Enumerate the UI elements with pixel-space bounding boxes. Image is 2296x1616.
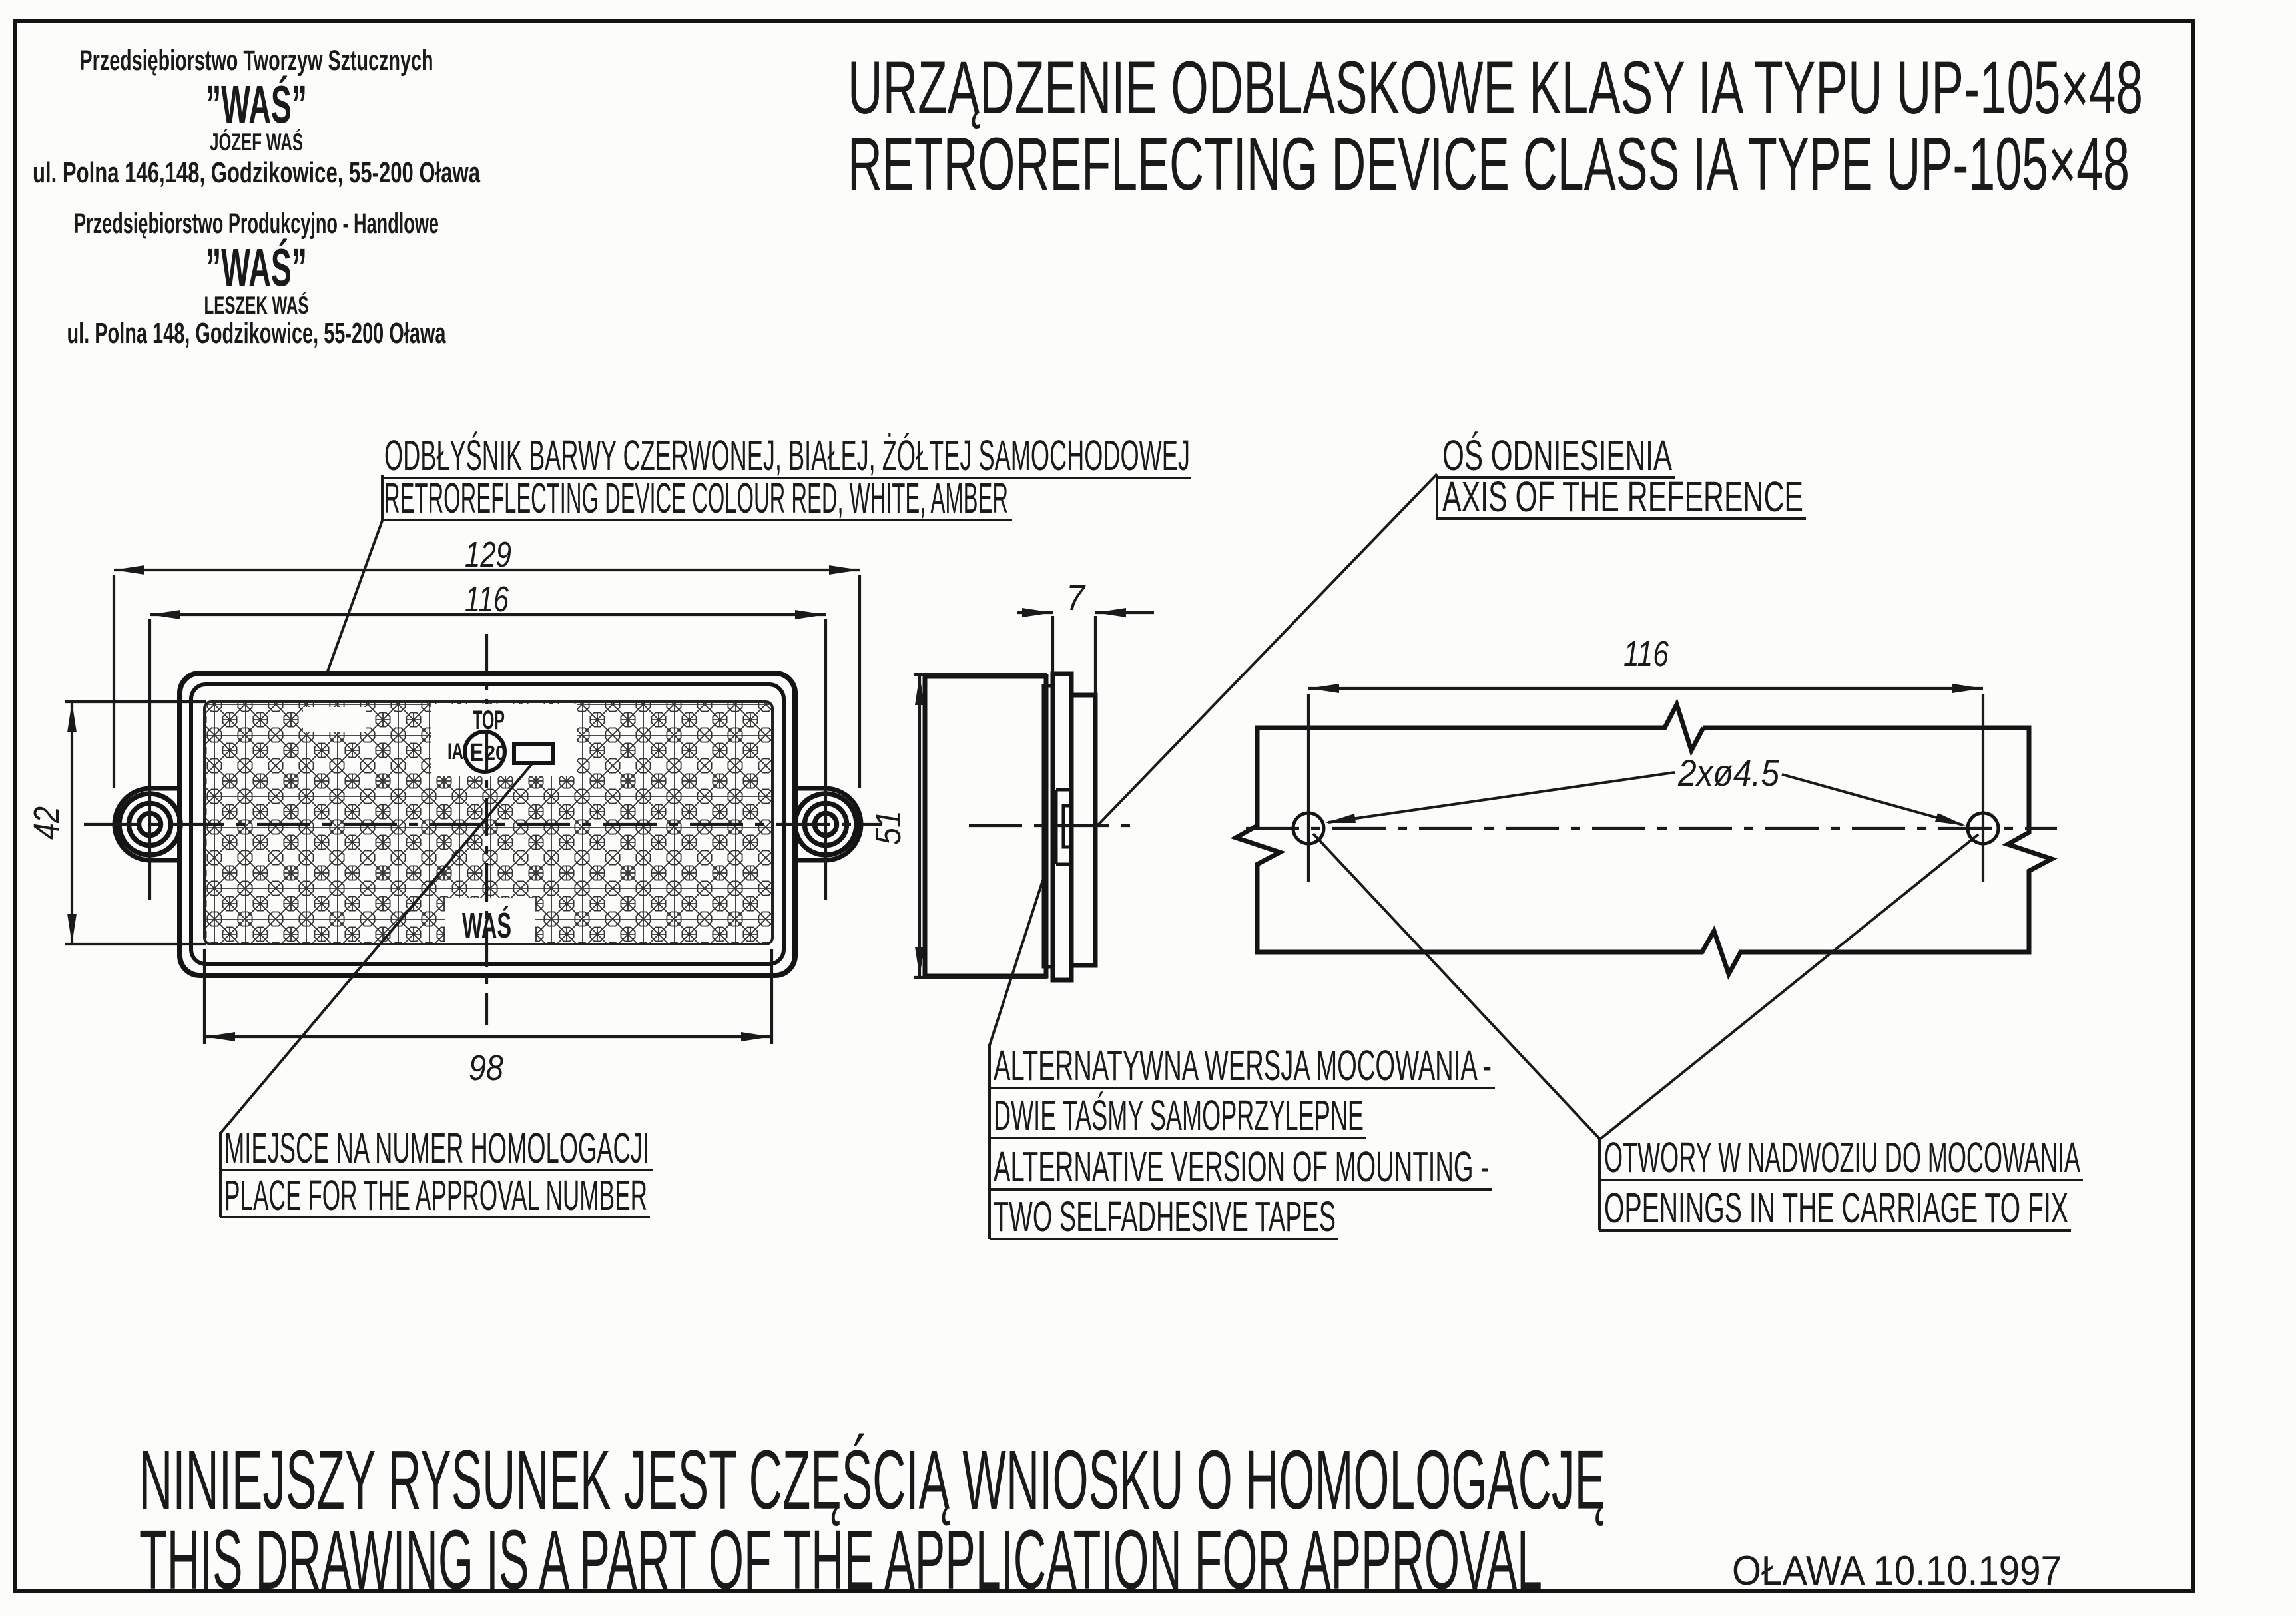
svg-text:ODBŁYŚNIK BARWY CZERWONEJ, BIA: ODBŁYŚNIK BARWY CZERWONEJ, BIAŁEJ, ŻÓŁTE… [384,431,1190,479]
svg-text:Przedsiębiorstwo Produkcyjno -: Przedsiębiorstwo Produkcyjno - Handlowe [74,208,439,240]
svg-text:ul. Polna 148, Godzikowice, 55: ul. Polna 148, Godzikowice, 55-200 Oława [67,317,446,350]
svg-text:LESZEK WAŚ: LESZEK WAŚ [204,291,309,319]
svg-text:98: 98 [469,1048,503,1088]
svg-text:ALTERNATIVE VERSION OF MOUNTIN: ALTERNATIVE VERSION OF MOUNTING - [994,1143,1489,1191]
svg-text:ALTERNATYWNA WERSJA MOCOWANIA: ALTERNATYWNA WERSJA MOCOWANIA - [994,1041,1492,1089]
svg-text:2xø4.5: 2xø4.5 [1677,752,1780,794]
svg-text:OPENINGS IN THE CARRIAGE TO FI: OPENINGS IN THE CARRIAGE TO FIX [1604,1184,2068,1232]
svg-text:OTWORY W NADWOZIU DO MOCOWANIA: OTWORY W NADWOZIU DO MOCOWANIA [1604,1133,2080,1181]
svg-text:ul. Polna 146,148, Godzikowice: ul. Polna 146,148, Godzikowice, 55-200 O… [33,156,480,189]
svg-text:129: 129 [465,535,511,575]
svg-text:Przedsiębiorstwo Tworzyw Sztuc: Przedsiębiorstwo Tworzyw Sztucznych [80,45,433,77]
svg-text:42: 42 [27,806,67,840]
svg-text:116: 116 [465,579,509,619]
svg-text:IA: IA [447,739,463,764]
svg-text:116: 116 [1623,634,1669,674]
svg-text:PLACE FOR THE APPROVAL NUMBER: PLACE FOR THE APPROVAL NUMBER [224,1171,647,1219]
svg-text:MIEJSCE NA NUMER HOMOLOGACJI: MIEJSCE NA NUMER HOMOLOGACJI [224,1124,649,1172]
svg-text:RETROREFLECTING DEVICE COLOUR: RETROREFLECTING DEVICE COLOUR RED, WHITE… [384,474,1008,522]
svg-text:51: 51 [868,810,908,845]
svg-text:RETROREFLECTING DEVICE CLASS I: RETROREFLECTING DEVICE CLASS IA TYPE UP-… [848,123,2130,206]
svg-text:DWIE TAŚMY SAMOPRZYLEPNE: DWIE TAŚMY SAMOPRZYLEPNE [994,1091,1364,1139]
svg-text:E: E [470,739,483,767]
svg-text:AXIS OF THE REFERENCE: AXIS OF THE REFERENCE [1442,473,1803,521]
svg-text:TWO SELFADHESIVE TAPES: TWO SELFADHESIVE TAPES [994,1193,1336,1240]
svg-text:OŁAWA 10.10.1997: OŁAWA 10.10.1997 [1732,1548,2062,1594]
svg-text:URZĄDZENIE ODBLASKOWE KLASY IA: URZĄDZENIE ODBLASKOWE KLASY IA TYPU UP-1… [848,46,2143,129]
svg-text:”WAŚ”: ”WAŚ” [206,75,307,134]
svg-text:THIS DRAWING IS A PART OF THE: THIS DRAWING IS A PART OF THE APPLICATIO… [139,1513,1542,1607]
svg-text:”WAŚ”: ”WAŚ” [206,238,307,297]
svg-text:7: 7 [1066,578,1086,618]
svg-text:JÓZEF WAŚ: JÓZEF WAŚ [210,128,303,156]
